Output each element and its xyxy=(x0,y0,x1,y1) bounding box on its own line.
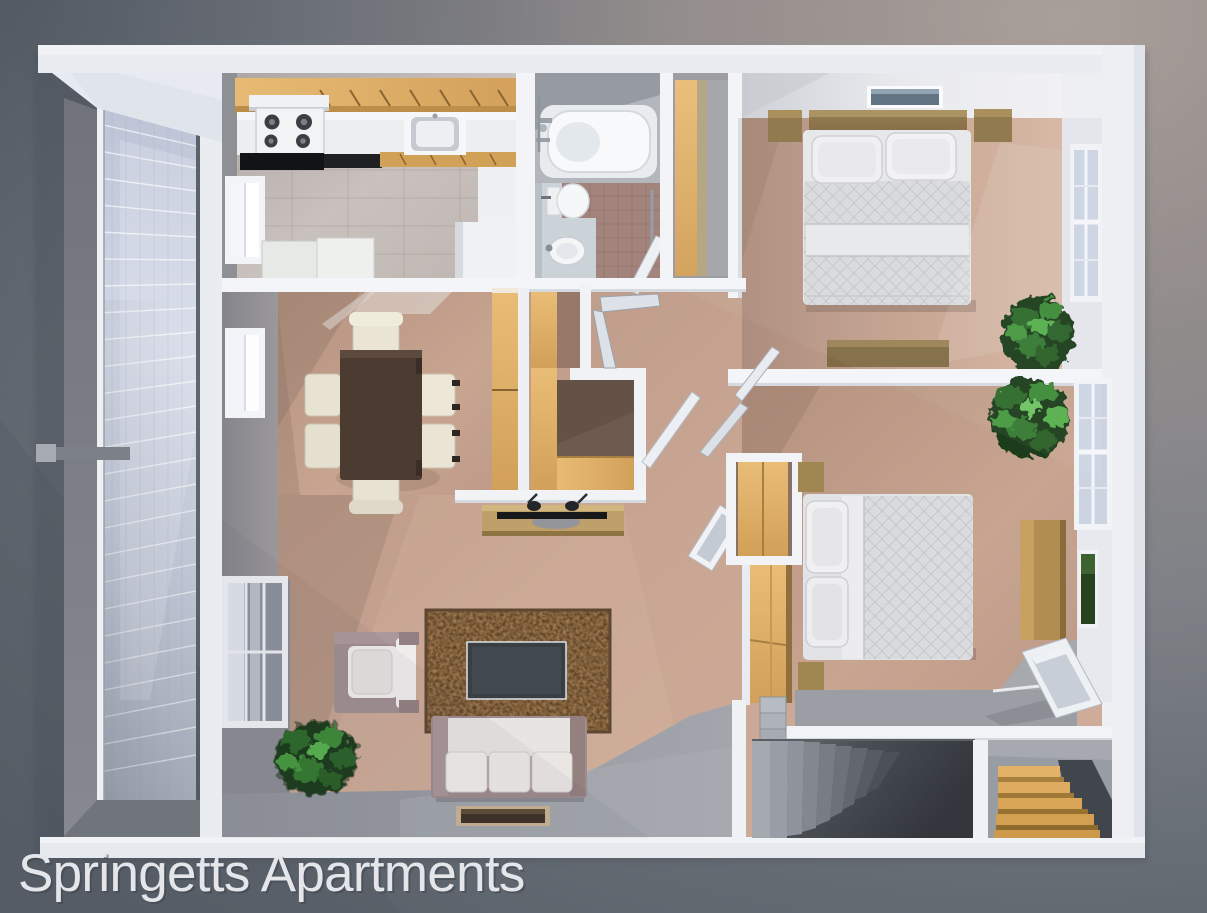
svg-text:Springetts Apartments: Springetts Apartments xyxy=(18,844,525,903)
